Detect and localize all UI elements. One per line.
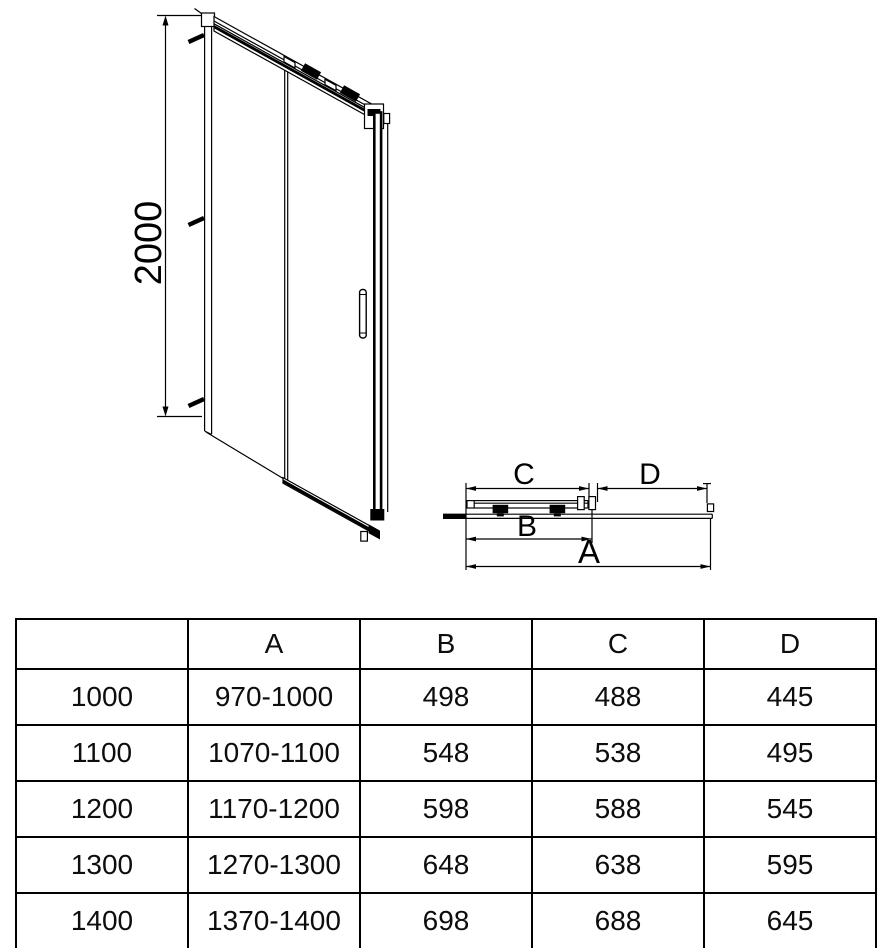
clamp-block-left (493, 505, 509, 513)
table-header-row: A B C D (16, 619, 876, 669)
cell-d: 645 (704, 893, 876, 948)
dim-label-a: A (578, 533, 600, 570)
cell-a: 970-1000 (188, 669, 360, 725)
cell-c: 588 (532, 781, 704, 837)
dimension-b: B (466, 510, 592, 543)
wall-bracket-bottom (189, 399, 205, 406)
front-view: 2000 (128, 9, 390, 542)
bottom-guide-rail (283, 478, 380, 541)
cell-size: 1100 (16, 725, 188, 781)
header-cell-a: A (188, 619, 360, 669)
clamp-block-right (550, 505, 566, 513)
cell-a: 1070-1100 (188, 725, 360, 781)
top-rail (214, 17, 390, 129)
cell-c: 638 (532, 837, 704, 893)
cell-b: 698 (360, 893, 532, 948)
cell-d: 445 (704, 669, 876, 725)
table-row: 1000 970-1000 498 488 445 (16, 669, 876, 725)
cell-b: 498 (360, 669, 532, 725)
cell-b: 598 (360, 781, 532, 837)
cell-a: 1370-1400 (188, 893, 360, 948)
dimension-c: C (466, 458, 589, 491)
dim-label-d: D (639, 458, 661, 491)
rail-end-knob (384, 114, 390, 124)
spec-sheet-page: 2000 (0, 0, 893, 948)
cell-size: 1000 (16, 669, 188, 725)
cell-d: 595 (704, 837, 876, 893)
cell-c: 488 (532, 669, 704, 725)
wall-bracket-top (189, 35, 205, 42)
header-cell-c: C (532, 619, 704, 669)
table-row: 1200 1170-1200 598 588 545 (16, 781, 876, 837)
door-handle (360, 290, 367, 339)
cell-b: 648 (360, 837, 532, 893)
table-row: 1400 1370-1400 698 688 645 (16, 893, 876, 948)
cell-b: 548 (360, 725, 532, 781)
header-cell-d: D (704, 619, 876, 669)
cell-c: 688 (532, 893, 704, 948)
dim-label-b: B (517, 510, 537, 543)
dim-label-c: C (513, 458, 535, 491)
cell-size: 1400 (16, 893, 188, 948)
dimension-d: D (598, 458, 708, 491)
arrow-down-icon (163, 407, 169, 417)
left-wall-profile (189, 9, 215, 435)
right-post (370, 113, 384, 521)
cell-size: 1200 (16, 781, 188, 837)
wall-bracket-middle (189, 218, 205, 225)
roller-bracket-b (589, 497, 596, 510)
cell-a: 1270-1300 (188, 837, 360, 893)
dimension-table: A B C D 1000 970-1000 498 488 445 1100 1… (15, 618, 877, 948)
panel-end-block (707, 504, 713, 512)
height-dimension: 2000 (128, 16, 206, 417)
header-cell-size (16, 619, 188, 669)
roller-bracket-a (578, 497, 585, 510)
cell-size: 1300 (16, 837, 188, 893)
guide-foot-knob (361, 532, 368, 542)
cell-d: 495 (704, 725, 876, 781)
plan-view: C D (443, 458, 714, 570)
cell-c: 538 (532, 725, 704, 781)
header-cell-b: B (360, 619, 532, 669)
table-row: 1300 1270-1300 648 638 595 (16, 837, 876, 893)
cell-d: 545 (704, 781, 876, 837)
table-row: 1100 1070-1100 548 538 495 (16, 725, 876, 781)
cell-a: 1170-1200 (188, 781, 360, 837)
arrow-up-icon (163, 16, 169, 26)
technical-drawing: 2000 (0, 0, 893, 610)
height-dimension-label: 2000 (128, 201, 170, 286)
